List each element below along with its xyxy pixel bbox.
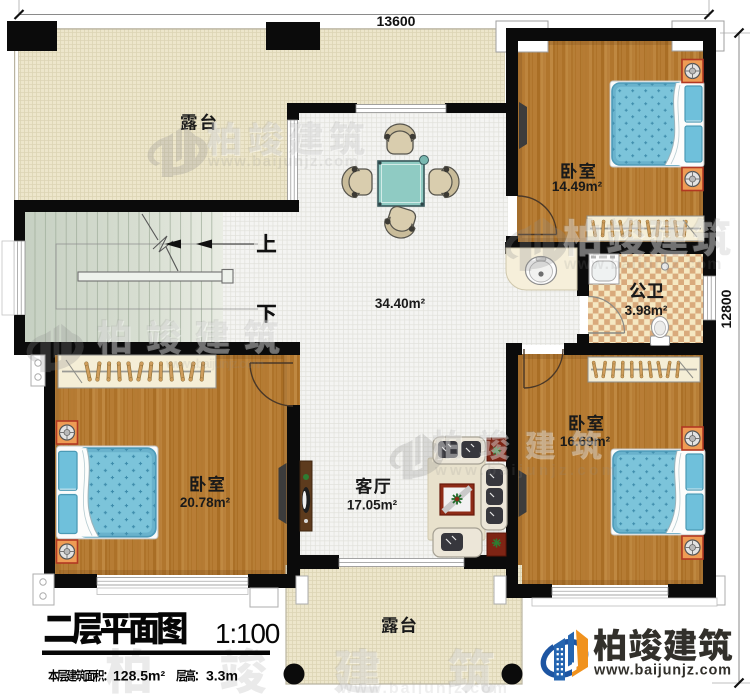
svg-text:1:100: 1:100 xyxy=(215,618,280,649)
svg-text:20.78m²: 20.78m² xyxy=(180,495,231,510)
svg-text:3.3m: 3.3m xyxy=(206,668,238,684)
svg-text:13600: 13600 xyxy=(377,13,416,29)
svg-text:3.98m²: 3.98m² xyxy=(625,303,668,318)
svg-text:www.baijunjz.com: www.baijunjz.com xyxy=(593,663,732,679)
svg-text:www.baijunjz.com: www.baijunjz.com xyxy=(165,356,266,371)
svg-text:www.baijunjz.com: www.baijunjz.com xyxy=(339,680,510,694)
svg-text:34.40m²: 34.40m² xyxy=(375,296,426,311)
svg-text:www.baijunjz.com: www.baijunjz.com xyxy=(563,256,724,273)
svg-text:12800: 12800 xyxy=(718,289,734,328)
svg-text:14.49m²: 14.49m² xyxy=(552,179,603,194)
svg-text:17.05m²: 17.05m² xyxy=(347,498,398,513)
svg-text:www.baijunjz.com: www.baijunjz.com xyxy=(434,462,619,479)
svg-text:www.baijunjz.com: www.baijunjz.com xyxy=(207,153,360,170)
svg-text:128.5m²: 128.5m² xyxy=(113,668,165,684)
